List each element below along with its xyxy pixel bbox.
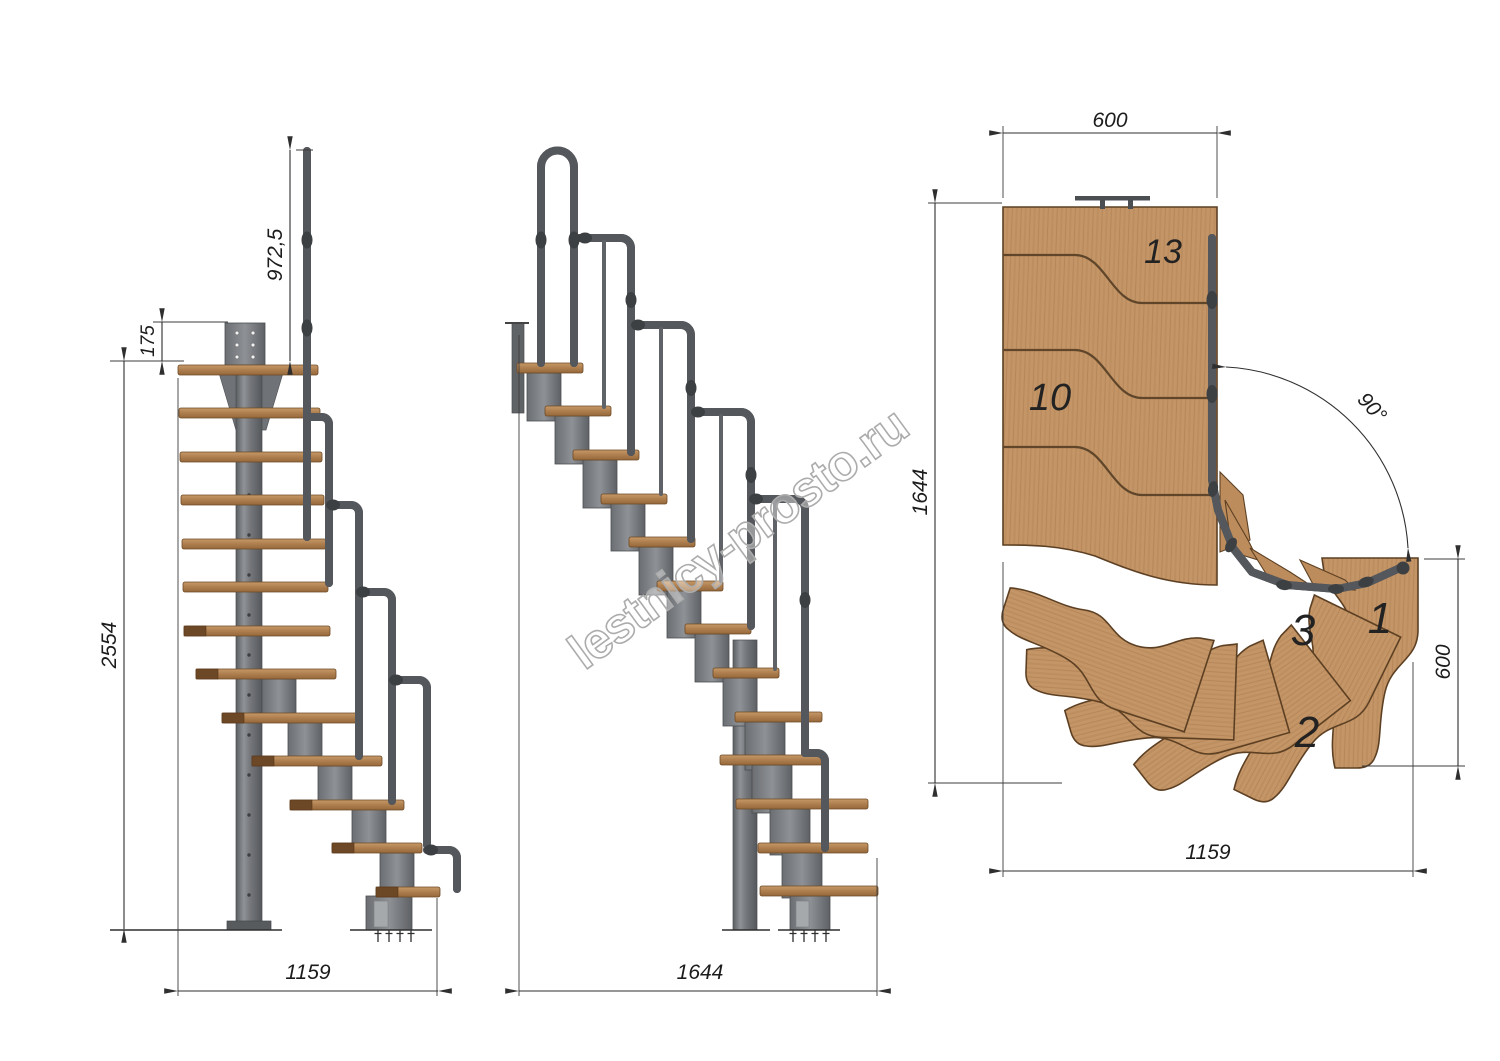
dim-front-width: 1159 xyxy=(285,961,330,984)
dim-total-height: 2554 xyxy=(98,622,121,670)
tread-number-10: 10 xyxy=(1029,377,1071,419)
plan-view: 90° 13 10 3 1 2 600 1644 600 1159 xyxy=(909,109,1465,877)
front-foot-module xyxy=(366,896,412,930)
tread-number-2: 2 xyxy=(1294,708,1319,757)
tread-number-3: 3 xyxy=(1291,606,1316,655)
plan-turn-arc: 90° xyxy=(1226,367,1408,548)
front-view: 2554 175 972,5 1159 xyxy=(98,150,457,996)
dim-top-offset: 175 xyxy=(138,325,159,357)
front-anchor-bolts xyxy=(375,931,415,943)
dim-plan-bottom-width: 1159 xyxy=(1185,841,1230,864)
tread-number-1: 1 xyxy=(1368,594,1392,643)
dim-turn-angle: 90° xyxy=(1353,388,1391,427)
dim-plan-depth: 1644 xyxy=(909,469,932,516)
drawing-canvas: 2554 175 972,5 1159 xyxy=(0,0,1500,1061)
side-anchor-bolts xyxy=(790,931,830,943)
dim-plan-top-width: 600 xyxy=(1092,109,1127,132)
top-mount-plate xyxy=(225,323,265,365)
staircase-drawing: 2554 175 972,5 1159 xyxy=(0,0,1500,1061)
dim-plan-exit-width: 600 xyxy=(1432,644,1455,679)
tread-number-13: 13 xyxy=(1144,233,1182,271)
dim-handrail-height: 972,5 xyxy=(264,228,287,281)
plan-fan-treads xyxy=(985,558,1418,830)
column-base-flange xyxy=(227,921,271,930)
dim-side-length: 1644 xyxy=(677,961,724,984)
